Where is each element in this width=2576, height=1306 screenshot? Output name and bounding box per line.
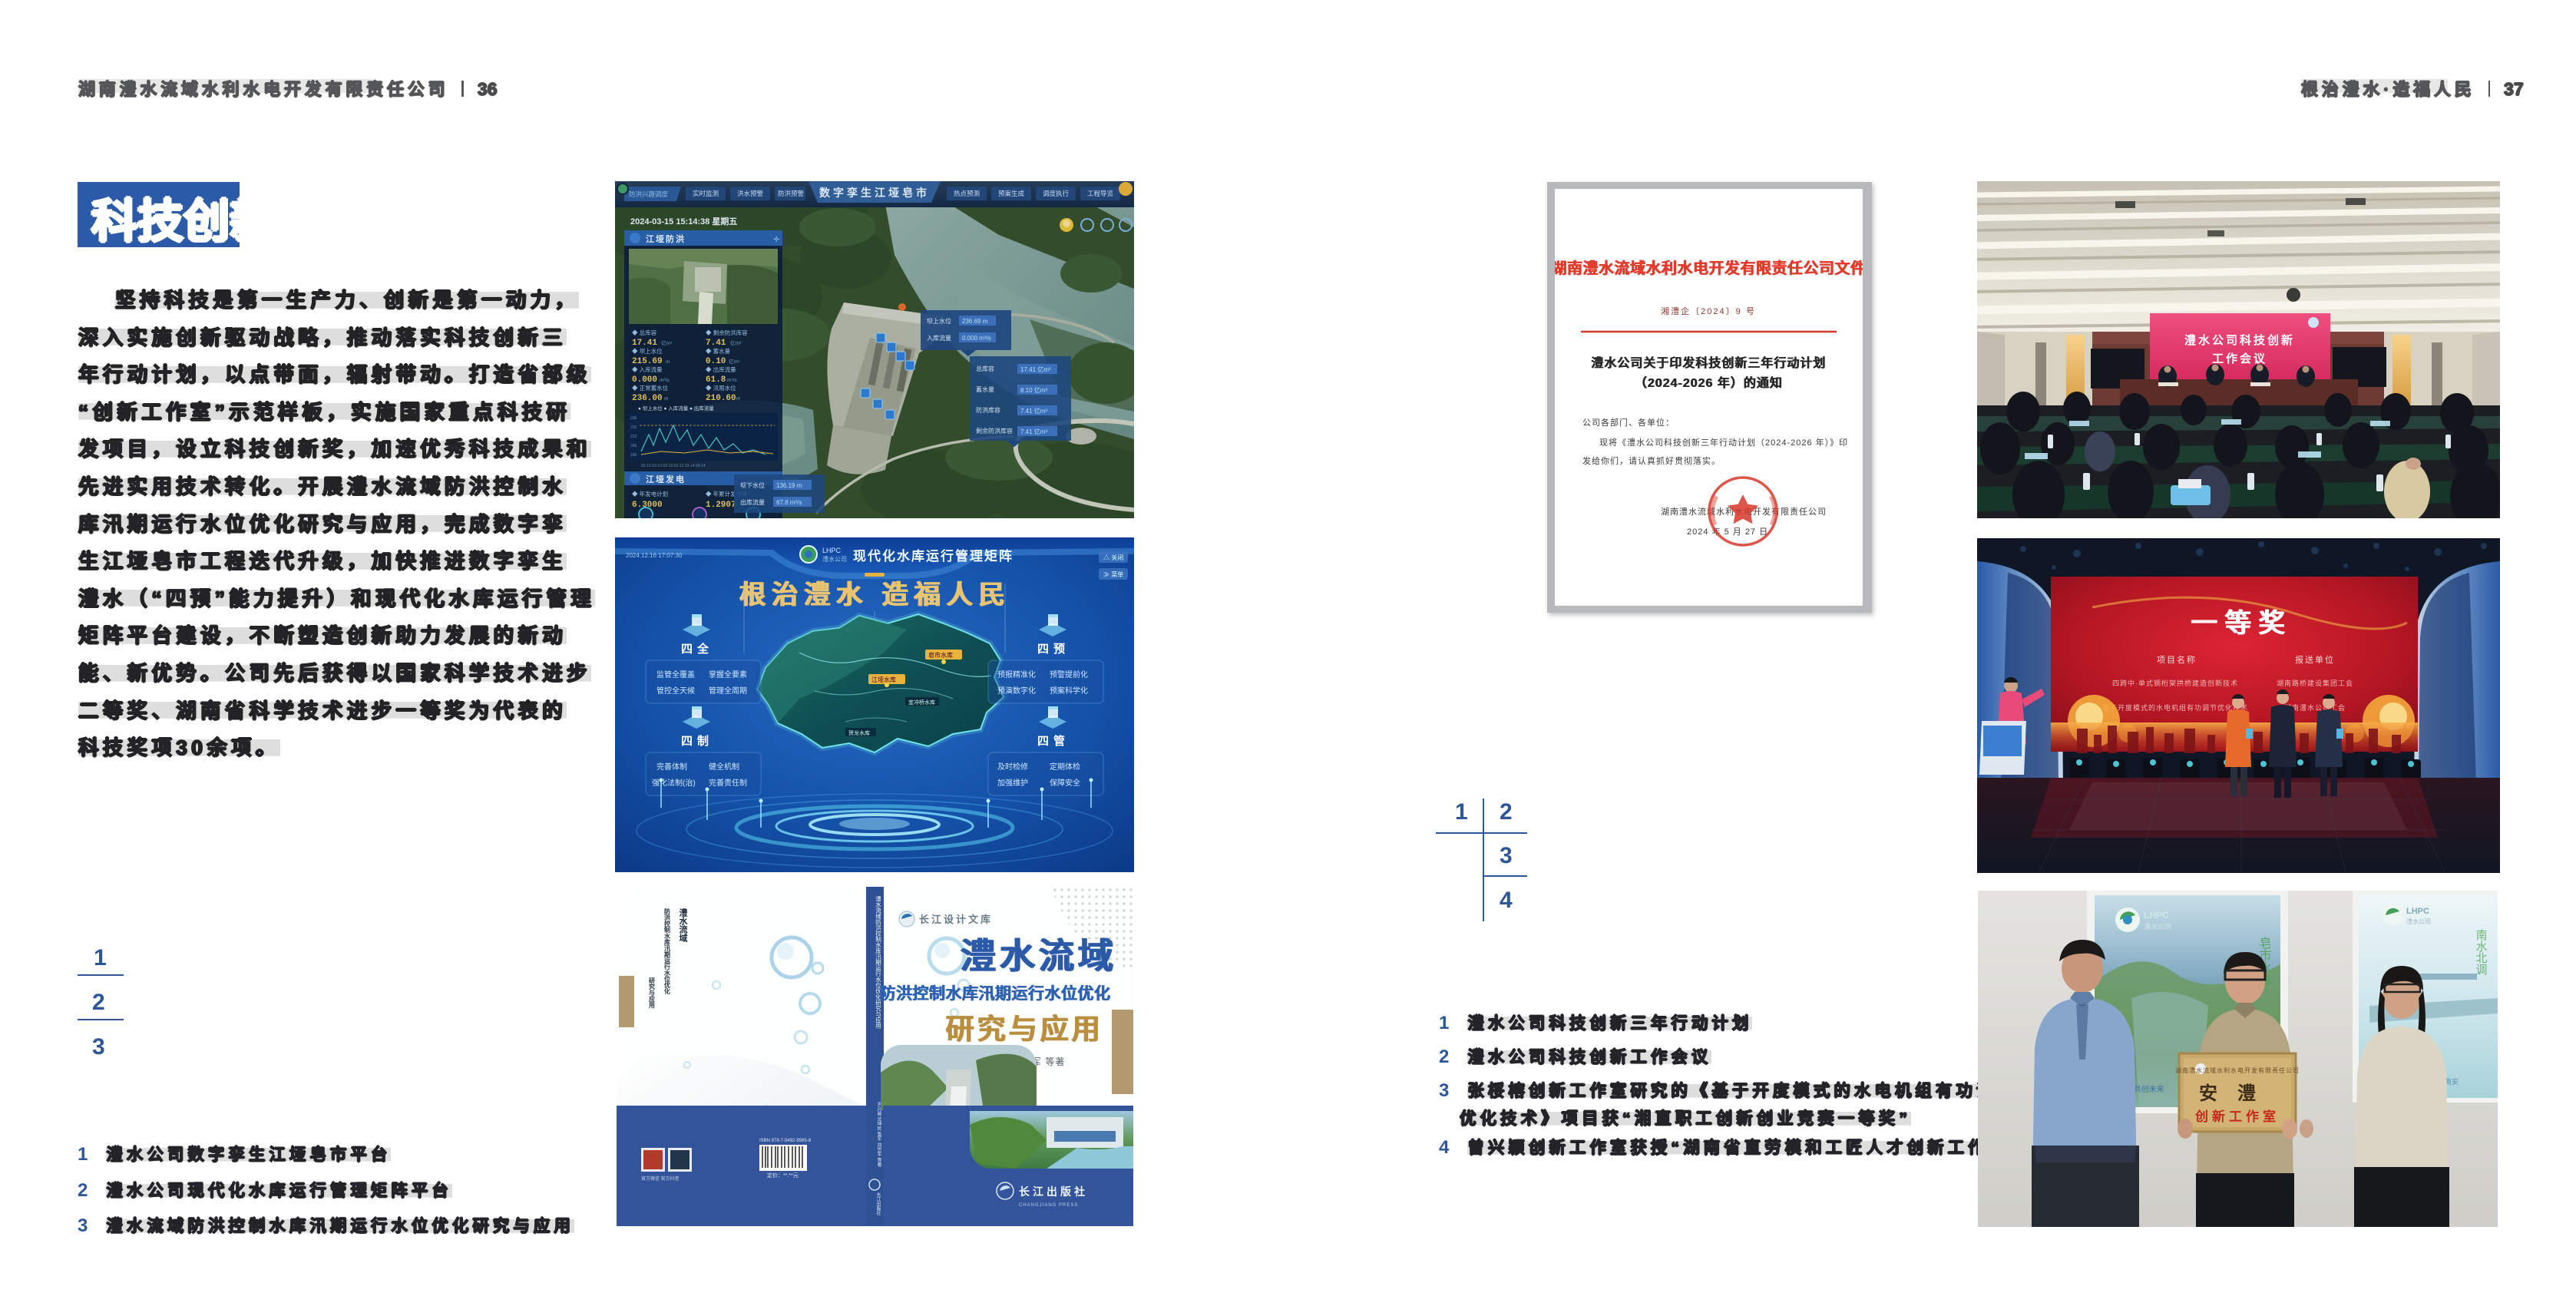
svg-text:（2024-2026 年）的通知: （2024-2026 年）的通知 [1635,375,1783,390]
svg-text:湖南澧水流域水利水电开发有限责任公司文件: 湖南澧水流域水利水电开发有限责任公司文件 [1555,259,1863,277]
svg-text:南水北调: 南水北调 [2475,929,2488,976]
svg-text:研究与应用: 研究与应用 [649,977,656,1009]
svg-text:基于开度模式的水电机组有功调节优化技术: 基于开度模式的水电机组有功调节优化技术 [2102,703,2248,712]
svg-text:宜冲桥水库: 宜冲桥水库 [908,699,935,706]
svg-text:长江设计文库: 长江设计文库 [919,914,993,925]
svg-text:四全: 四全 [681,642,713,656]
svg-text:ISBN 978-7-5492-9565-8: ISBN 978-7-5492-9565-8 [759,1139,812,1143]
svg-text:CHANGJIANG PRESS: CHANGJIANG PRESS [1019,1203,1078,1208]
svg-text:≫ 菜单: ≫ 菜单 [1103,570,1123,578]
svg-text:健全机制: 健全机制 [709,762,739,772]
svg-text:预案科学化: 预案科学化 [1050,686,1088,696]
svg-text:湘澧企〔2024〕9 号: 湘澧企〔2024〕9 号 [1661,306,1756,316]
svg-text:江垭水库: 江垭水库 [871,676,896,683]
svg-text:LHPC: LHPC [822,547,842,554]
svg-text:湖南路桥建设集团工会: 湖南路桥建设集团工会 [2277,679,2353,687]
svg-text:皂市水库: 皂市水库 [928,651,953,659]
svg-text:预警提前化: 预警提前化 [1050,670,1088,679]
svg-text:贺龙水库: 贺龙水库 [848,729,870,736]
svg-text:长江出版社: 长江出版社 [875,1192,881,1216]
svg-text:一等奖: 一等奖 [2191,609,2292,638]
svg-text:2024.12.16 17:07:30: 2024.12.16 17:07:30 [626,552,683,559]
svg-text:四制: 四制 [681,734,713,748]
svg-text:发给你们，请认真抓好贯彻落实。: 发给你们，请认真抓好贯彻落实。 [1582,455,1721,466]
svg-text:澧水公司: 澧水公司 [822,555,847,563]
svg-text:安澧: 安澧 [2199,1083,2276,1104]
svg-text:保障安全: 保障安全 [1050,778,1080,788]
svg-text:四跨中·单式钢桁架拱桥建造创新技术: 四跨中·单式钢桁架拱桥建造创新技术 [2112,679,2238,687]
svg-text:澧水流域: 澧水流域 [960,936,1116,976]
svg-text:定期体检: 定期体检 [1050,762,1080,772]
svg-text:澧水公司: 澧水公司 [2144,922,2171,931]
svg-text:△ 关闭: △ 关闭 [1103,554,1123,561]
svg-text:长江出版社: 长江出版社 [1019,1185,1088,1198]
svg-text:研究与应用: 研究与应用 [945,1013,1103,1045]
svg-text:澧水公司关于印发科技创新三年行动计划: 澧水公司关于印发科技创新三年行动计划 [1591,355,1826,370]
svg-text:湖南澧水流域水利水电开发有限责任公司: 湖南澧水流域水利水电开发有限责任公司 [2175,1066,2300,1074]
svg-text:及时检修: 及时检修 [997,762,1028,772]
svg-text:加强维护: 加强维护 [997,778,1028,788]
svg-text:四预: 四预 [1037,643,1070,656]
svg-text:澧水流域: 澧水流域 [678,908,688,943]
svg-text:澧水公司科技创新: 澧水公司科技创新 [2184,333,2295,347]
svg-text:监管全覆盖: 监管全覆盖 [656,670,695,679]
svg-text:现代化水库运行管理矩阵: 现代化水库运行管理矩阵 [853,548,1014,564]
svg-text:澧水流域防洪控制水库汛期运行水位优化研究与应用: 澧水流域防洪控制水库汛期运行水位优化研究与应用 [875,895,881,1030]
svg-text:强化法制(治): 强化法制(治) [652,778,696,788]
svg-text:澧水公司: 澧水公司 [2406,918,2431,925]
svg-text:项目名称: 项目名称 [2157,654,2197,665]
svg-text:四管: 四管 [1037,734,1070,748]
svg-text:报送单位: 报送单位 [2295,654,2335,665]
svg-text:LHPC: LHPC [2406,907,2429,916]
svg-text:2024 年 5 月 27 日: 2024 年 5 月 27 日 [1687,526,1768,537]
svg-text:洪兴骏 沈坤民 鲁军 刘世军 等著: 洪兴骏 沈坤民 鲁军 刘世军 等著 [876,1101,881,1168]
svg-text:工作会议: 工作会议 [2212,352,2267,365]
svg-text:现将《澧水公司科技创新三年行动计划（2024-2026 年）: 现将《澧水公司科技创新三年行动计划（2024-2026 年）》印 [1599,437,1848,448]
svg-text:LHPC: LHPC [2144,910,2169,921]
svg-text:创新工作室: 创新工作室 [2194,1109,2280,1124]
svg-text:官方微信 官方抖音: 官方微信 官方抖音 [641,1175,680,1182]
svg-text:管控全天候: 管控全天候 [656,686,695,696]
svg-text:公司各部门、各单位：: 公司各部门、各单位： [1582,417,1675,428]
svg-text:完善责任制: 完善责任制 [709,778,747,788]
svg-text:完善体制: 完善体制 [656,762,687,772]
svg-text:预报精准化: 预报精准化 [997,670,1036,679]
svg-text:掌握全要素: 掌握全要素 [709,670,747,679]
svg-text:预演数字化: 预演数字化 [997,686,1036,696]
svg-text:定价：**.**元: 定价：**.**元 [767,1172,799,1179]
svg-text:根治澧水 造福人民: 根治澧水 造福人民 [739,580,1010,610]
svg-text:管理全周期: 管理全周期 [709,686,747,696]
svg-text:防洪控制水库汛期运行水位优化: 防洪控制水库汛期运行水位优化 [663,908,671,995]
svg-text:防洪控制水库汛期运行水位优化: 防洪控制水库汛期运行水位优化 [879,984,1110,1003]
